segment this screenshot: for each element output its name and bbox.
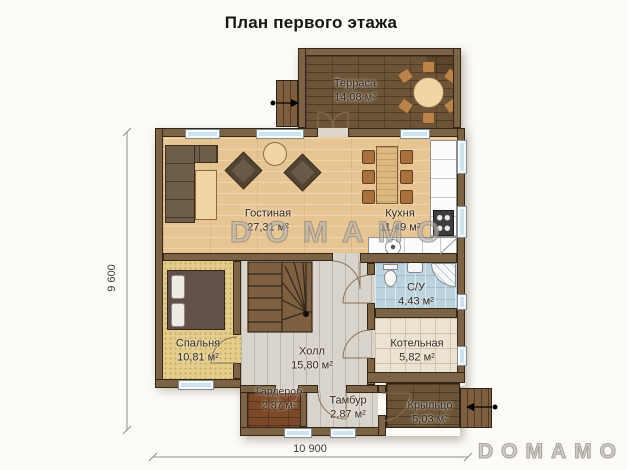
room-label-bathroom: С/У 4,43 м² <box>398 281 434 310</box>
door-opening <box>318 128 348 137</box>
dining-chair <box>400 190 413 204</box>
room-name: Кухня <box>380 207 421 221</box>
wall-segment <box>453 48 461 128</box>
window <box>256 129 304 139</box>
room-area: 4,43 м² <box>398 295 434 309</box>
wall-segment <box>367 263 375 275</box>
room-area: 27,31 м² <box>245 221 291 235</box>
room-label-terrace: Терраса 14,08 м² <box>334 77 376 106</box>
porch-stair-dot <box>493 405 498 410</box>
dining-chair <box>362 150 375 164</box>
page-title: План первого этажа <box>225 13 397 33</box>
room-area: 11,49 м² <box>380 221 421 235</box>
dimension-horizontal: 10 900 <box>293 443 327 455</box>
wall-segment <box>298 48 306 128</box>
room-name: Спальня <box>176 337 220 351</box>
dining-chair <box>400 150 413 164</box>
wall-segment <box>155 128 163 388</box>
pillow <box>171 303 185 327</box>
terrace-side-stairs <box>276 80 298 127</box>
room-label-hall: Холл 15,80 м² <box>291 345 333 374</box>
pillow <box>171 275 185 299</box>
floor-plan: План первого этажа <box>0 0 627 470</box>
room-name: Холл <box>291 345 333 359</box>
room-area: 14,08 м² <box>334 91 376 105</box>
coffee-table <box>195 170 217 220</box>
dimension-vertical: 9 600 <box>106 264 118 292</box>
window <box>185 129 220 139</box>
window <box>457 294 467 310</box>
window <box>330 428 356 438</box>
room-label-vestibule: Тамбур 2,87 м² <box>329 394 366 423</box>
room-name: Терраса <box>334 77 376 91</box>
terrace-stair-dot <box>271 101 276 106</box>
stove-icon <box>433 210 454 236</box>
room-label-bedroom: Спальня 10,81 м² <box>176 337 220 366</box>
wall-segment <box>360 253 457 263</box>
watermark-corner: DOMAMO <box>478 440 624 464</box>
room-name: Гостиная <box>245 207 291 221</box>
window <box>400 129 430 139</box>
room-label-living: Гостиная 27,31 м² <box>245 207 291 236</box>
dining-chair <box>362 170 375 184</box>
bath-sink-icon <box>407 262 423 273</box>
room-area: 2,87 м² <box>329 408 366 422</box>
corner-sofa-side <box>165 145 195 223</box>
window <box>284 428 312 438</box>
wall-segment <box>378 415 386 436</box>
window <box>178 380 214 390</box>
room-label-wardrobe: Гардероб 2,87 м² <box>256 385 302 412</box>
wall-segment <box>367 372 465 383</box>
dining-table <box>376 146 398 204</box>
room-name: С/У <box>398 281 434 295</box>
terrace-chair <box>422 61 435 73</box>
room-area: 5,82 м² <box>390 351 443 365</box>
room-name: Тамбур <box>329 394 366 408</box>
porch-steps <box>460 388 492 428</box>
room-label-porch: Крыльцо 5,03 м² <box>408 399 453 428</box>
wall-segment <box>378 385 386 393</box>
terrace-table <box>413 77 444 108</box>
wall-segment <box>298 48 461 56</box>
terrace-chair <box>422 112 435 124</box>
room-area: 15,80 м² <box>291 359 333 373</box>
wall-segment <box>240 427 386 436</box>
room-name: Котельная <box>390 337 443 351</box>
room-name: Крыльцо <box>408 399 453 413</box>
wall-segment <box>163 253 333 261</box>
side-table <box>263 142 287 166</box>
room-name: Гардероб <box>256 385 302 399</box>
room-area: 10,81 м² <box>176 351 220 365</box>
window <box>457 346 467 366</box>
wall-segment <box>233 363 241 379</box>
wall-segment <box>346 385 378 393</box>
window <box>457 140 467 174</box>
wall-segment <box>367 303 375 330</box>
room-area: 2,87 м² <box>256 399 302 413</box>
dining-chair <box>400 170 413 184</box>
room-area: 5,03 м² <box>408 413 453 427</box>
dining-chair <box>362 190 375 204</box>
room-label-boiler: Котельная 5,82 м² <box>390 337 443 366</box>
window <box>457 206 467 238</box>
wall-segment <box>233 261 241 335</box>
wall-segment <box>375 308 457 318</box>
room-label-kitchen: Кухня 11,49 м² <box>380 207 421 236</box>
